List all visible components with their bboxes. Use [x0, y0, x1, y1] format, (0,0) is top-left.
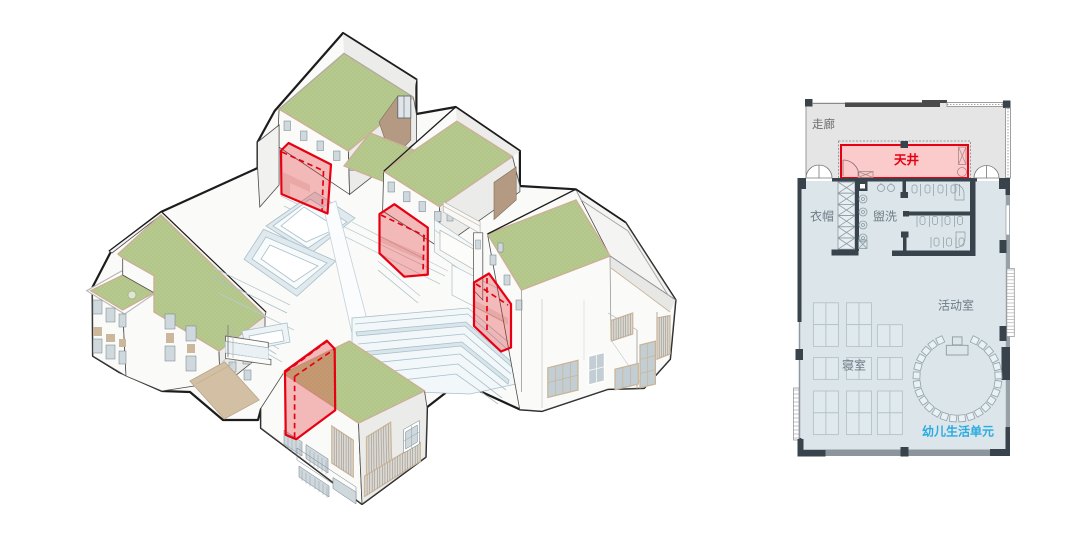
svg-text:盥洗: 盥洗	[873, 210, 897, 224]
svg-text:走廊: 走廊	[812, 117, 835, 131]
svg-text:活动室: 活动室	[938, 298, 974, 313]
svg-text:天井: 天井	[894, 152, 920, 167]
svg-text:衣帽: 衣帽	[810, 209, 834, 224]
svg-text:幼儿生活单元: 幼儿生活单元	[922, 424, 994, 439]
svg-text:寝室: 寝室	[842, 358, 866, 373]
